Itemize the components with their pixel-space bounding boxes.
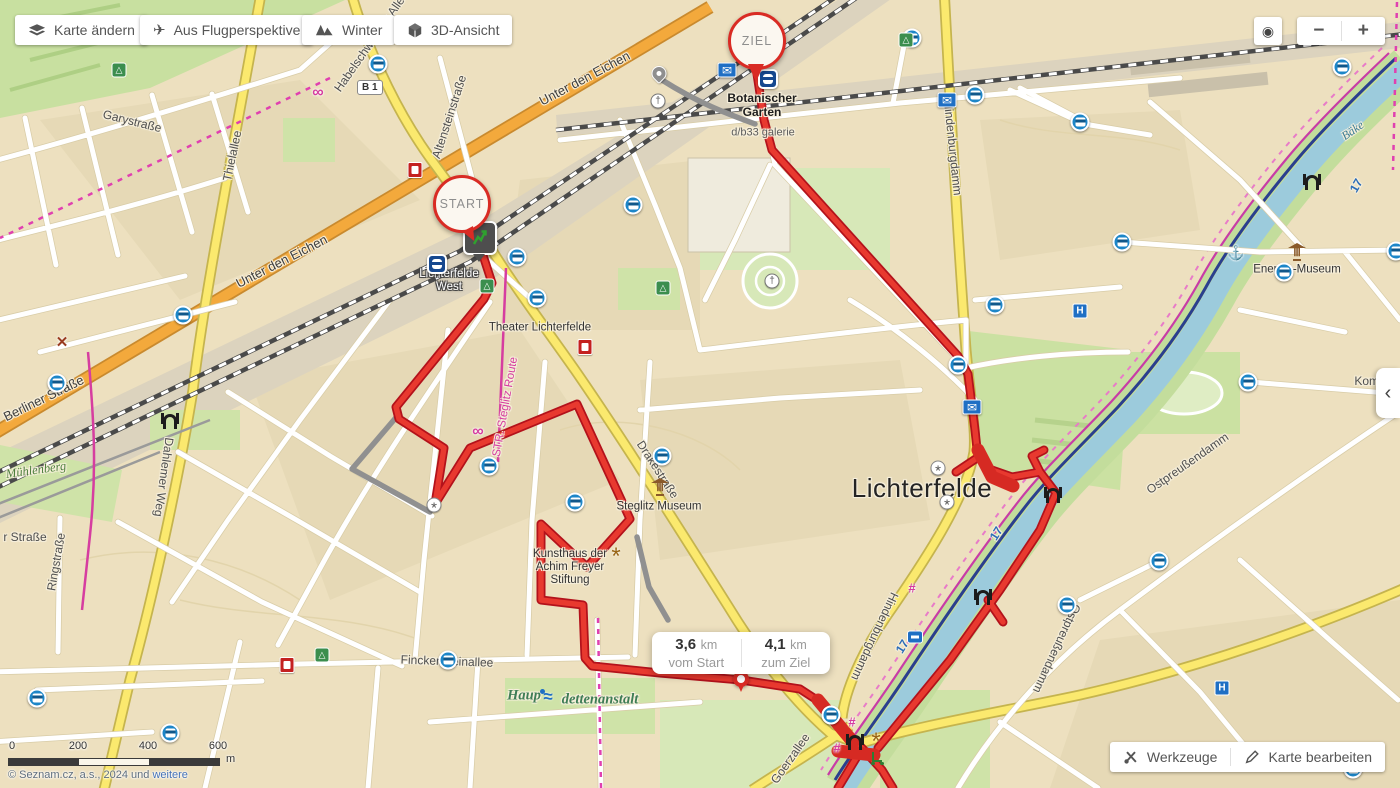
post-icon[interactable]	[718, 63, 737, 78]
ferry-icon[interactable]	[907, 631, 923, 644]
bike-icon[interactable]	[472, 423, 483, 441]
bus-icon[interactable]	[1071, 113, 1090, 132]
bus-icon[interactable]	[1058, 596, 1077, 615]
playground-icon[interactable]	[656, 281, 671, 296]
map-attribution: © Seznam.cz, a.s., 2024 und weitere	[8, 769, 188, 781]
distance-from-value: 3,6	[675, 636, 696, 653]
bus-icon[interactable]	[480, 457, 499, 476]
bridge-icon[interactable]	[974, 589, 992, 601]
bus-icon[interactable]	[653, 447, 672, 466]
bus-icon[interactable]	[1333, 58, 1352, 77]
destination-marker-label: ZIEL	[742, 34, 772, 48]
bus-icon[interactable]	[528, 289, 547, 308]
distance-to-unit: km	[790, 638, 807, 652]
scale-strip	[8, 758, 220, 766]
tram-icon[interactable]	[908, 581, 915, 596]
museum-icon[interactable]	[651, 479, 669, 495]
star-icon[interactable]	[871, 729, 880, 747]
chevron-left-icon: ‹	[1385, 382, 1392, 405]
bus-icon[interactable]	[1113, 233, 1132, 252]
playground-icon[interactable]	[112, 63, 127, 78]
destination-marker[interactable]: ZIEL	[728, 12, 786, 70]
spoke-icon[interactable]	[940, 495, 955, 510]
church-icon[interactable]	[651, 94, 666, 109]
attribution-text: © Seznam.cz, a.s., 2024 und	[8, 769, 152, 781]
view-3d-button[interactable]: 3D-Ansicht	[394, 15, 512, 45]
winter-button[interactable]: Winter	[302, 15, 395, 45]
scale-tick: 400	[139, 740, 157, 752]
side-panel-toggle[interactable]: ‹	[1376, 368, 1400, 418]
playground-icon[interactable]	[315, 648, 330, 663]
bridge-icon[interactable]	[846, 734, 864, 746]
zoom-out-button[interactable]: −	[1297, 17, 1341, 45]
scale-tick: 0	[9, 740, 15, 752]
swim-icon[interactable]	[539, 690, 557, 704]
bus-icon[interactable]	[1275, 263, 1294, 282]
distance-tooltip: 3,6 km vom Start 4,1 km zum Ziel	[652, 632, 830, 674]
tools-label: Werkzeuge	[1147, 749, 1218, 765]
road-shield-b1: B 1	[357, 80, 383, 95]
playground-icon[interactable]	[899, 33, 914, 48]
edit-map-label: Karte bearbeiten	[1268, 749, 1372, 765]
bus-icon[interactable]	[369, 55, 388, 74]
bus-icon[interactable]	[566, 493, 585, 512]
change-map-button[interactable]: Karte ändern	[15, 15, 148, 45]
bridge-icon[interactable]	[161, 413, 179, 425]
bus-icon[interactable]	[161, 724, 180, 743]
anchor-icon[interactable]	[1227, 245, 1244, 262]
spoke-icon[interactable]	[427, 498, 442, 513]
birds-eye-label: Aus Flugperspektive	[174, 22, 301, 38]
pencil-icon	[1244, 749, 1260, 765]
map-application: GarystraßeThielalleeAltensteinstraßeHabe…	[0, 0, 1400, 788]
cube-icon	[407, 22, 423, 39]
mountains-icon	[315, 23, 334, 37]
distance-from-label: vom Start	[652, 655, 741, 671]
bus-icon[interactable]	[1150, 552, 1169, 571]
distance-to-value: 4,1	[765, 636, 786, 653]
attribution-more-link[interactable]: weitere	[152, 769, 187, 781]
bus-icon[interactable]	[1387, 242, 1400, 261]
distance-to-label: zum Ziel	[742, 655, 831, 671]
hospital-icon[interactable]	[1215, 681, 1230, 696]
change-map-label: Karte ändern	[54, 22, 135, 38]
bus-icon[interactable]	[174, 306, 193, 325]
church-icon[interactable]	[765, 274, 780, 289]
spoke-icon[interactable]	[931, 461, 946, 476]
locate-button[interactable]: ◉	[1254, 17, 1282, 45]
bike-icon[interactable]	[312, 84, 323, 102]
train-icon[interactable]	[427, 254, 447, 274]
start-marker[interactable]: START	[433, 175, 491, 233]
post-icon[interactable]	[963, 400, 982, 415]
bus-icon[interactable]	[508, 248, 527, 267]
zoom-in-button[interactable]: +	[1342, 17, 1386, 45]
tram-icon[interactable]	[848, 715, 855, 730]
distance-from-start: 3,6 km vom Start	[652, 635, 741, 671]
windmill-icon[interactable]	[54, 334, 70, 350]
bus-icon[interactable]	[28, 689, 47, 708]
bottom-action-bar: Werkzeuge Karte bearbeiten	[1110, 742, 1385, 772]
tram-icon[interactable]	[833, 741, 840, 756]
bus-icon[interactable]	[1239, 373, 1258, 392]
tools-icon	[1123, 749, 1139, 765]
bus-icon[interactable]	[986, 296, 1005, 315]
bus-icon[interactable]	[966, 86, 985, 105]
playground-icon[interactable]	[480, 279, 495, 294]
layers-icon	[28, 23, 46, 38]
scale-tick: 200	[69, 740, 87, 752]
scale-tick: 600	[209, 740, 227, 752]
birds-eye-button[interactable]: ✈ Aus Flugperspektive	[140, 15, 313, 45]
hospital-icon[interactable]	[1073, 304, 1088, 319]
distance-to-goal: 4,1 km zum Ziel	[742, 635, 831, 671]
bridge-icon[interactable]	[1044, 487, 1062, 499]
scale-unit: m	[226, 753, 235, 765]
post-icon[interactable]	[938, 93, 957, 108]
gas-icon[interactable]	[578, 339, 593, 355]
plane-icon: ✈	[153, 23, 166, 38]
start-marker-label: START	[440, 197, 485, 211]
bus-icon[interactable]	[48, 374, 67, 393]
gas-icon[interactable]	[408, 162, 423, 178]
star-icon[interactable]	[611, 544, 620, 562]
edit-map-button[interactable]: Karte bearbeiten	[1231, 742, 1385, 772]
distance-from-unit: km	[701, 638, 718, 652]
bus-icon[interactable]	[822, 706, 841, 725]
tools-button[interactable]: Werkzeuge	[1110, 742, 1231, 772]
bus-icon[interactable]	[624, 196, 643, 215]
view-3d-label: 3D-Ansicht	[431, 22, 499, 38]
gas-icon[interactable]	[280, 657, 295, 673]
museum-icon[interactable]	[1288, 244, 1306, 260]
bridge-icon[interactable]	[1303, 174, 1321, 186]
zoom-control: − +	[1297, 17, 1385, 45]
winter-label: Winter	[342, 22, 382, 38]
bus-icon[interactable]	[439, 651, 458, 670]
locate-icon: ◉	[1262, 23, 1274, 40]
bus-icon[interactable]	[949, 356, 968, 375]
